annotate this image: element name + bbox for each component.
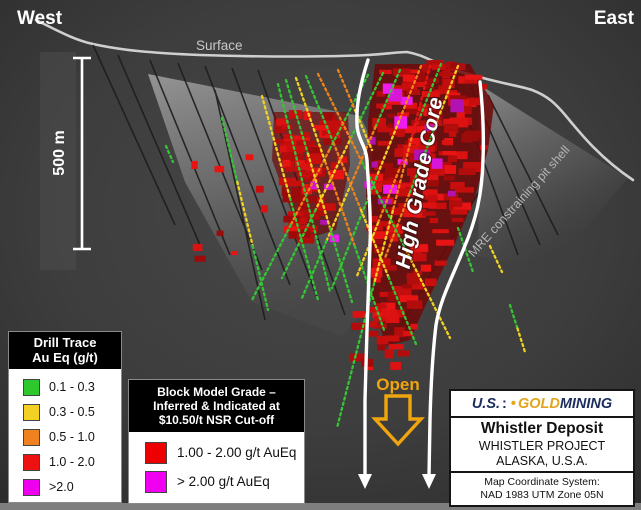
coord-line1: Map Coordinate System: (484, 476, 600, 489)
block-legend-title-line2: Inferred & Indicated at (131, 399, 302, 413)
legend-item-label: 0.3 - 0.5 (49, 405, 95, 419)
ore-block (407, 279, 419, 285)
ore-block (444, 175, 455, 180)
legend-item-label: > 2.00 g/t AuEq (177, 474, 270, 489)
ore-block (432, 229, 449, 233)
block-legend-title-line3: $10.50/t NSR Cut-off (131, 413, 302, 427)
east-label: East (594, 8, 635, 29)
logo-dots-navy: : (502, 396, 507, 412)
surface-label: Surface (196, 38, 243, 53)
open-label: Open (376, 375, 419, 394)
ore-block (389, 344, 404, 349)
ore-block (367, 331, 378, 337)
cross-section-figure: West East Surface 500 m MRE constraining… (0, 0, 641, 510)
location-name: ALASKA, U.S.A. (496, 454, 588, 469)
ore-block (283, 195, 302, 203)
color-swatch (23, 479, 40, 496)
west-label: West (17, 8, 63, 29)
ore-block (385, 350, 394, 359)
legend-item: 0.1 - 0.3 (23, 375, 121, 400)
ore-block (282, 125, 293, 129)
ore-block (452, 218, 464, 222)
ore-block (402, 284, 412, 288)
ore-block (382, 310, 397, 319)
ore-block (421, 265, 431, 272)
ore-block (256, 186, 264, 193)
ore-block (430, 218, 439, 223)
ore-block (397, 131, 404, 137)
color-swatch (23, 454, 40, 471)
ore-block (449, 131, 456, 137)
ore-block (459, 168, 476, 175)
ore-block (379, 70, 391, 74)
block-legend-body: 1.00 - 2.00 g/t AuEq > 2.00 g/t AuEq (129, 432, 304, 500)
project-name: WHISTLER PROJECT (479, 439, 605, 454)
block-legend-title-line1: Block Model Grade – (131, 385, 302, 399)
legend-item-label: >2.0 (49, 480, 74, 494)
ore-block (398, 350, 410, 356)
ore-block (406, 90, 420, 95)
ore-block (444, 165, 456, 174)
ore-block (466, 75, 483, 80)
ore-block (378, 199, 392, 204)
ore-block (372, 162, 378, 168)
ore-block (193, 244, 203, 251)
ore-block (377, 163, 394, 168)
legend-item: >2.0 (23, 475, 121, 500)
legend-item-label: 0.1 - 0.3 (49, 380, 95, 394)
block-legend-title: Block Model Grade – Inferred & Indicated… (129, 380, 304, 432)
ore-block (466, 131, 482, 139)
legend-item: 1.0 - 2.0 (23, 450, 121, 475)
legend-item-label: 1.0 - 2.0 (49, 455, 95, 469)
ore-block (436, 240, 454, 246)
ore-block (451, 209, 468, 214)
ore-block (302, 174, 310, 178)
block-model-legend: Block Model Grade – Inferred & Indicated… (128, 379, 305, 504)
ore-block (453, 99, 459, 111)
coord-line2: NAD 1983 UTM Zone 05N (480, 489, 603, 502)
drill-legend-body: 0.1 - 0.3 0.3 - 0.5 0.5 - 1.0 1.0 - 2.0 … (9, 369, 121, 504)
ore-block (377, 344, 386, 350)
legend-item-label: 0.5 - 1.0 (49, 430, 95, 444)
ore-block (195, 256, 206, 262)
logo-mining-text: MINING (560, 396, 612, 412)
title-block: U.S. :• GOLDMINING Whistler Deposit WHIS… (449, 389, 635, 507)
drill-legend-title-line2: Au Eq (g/t) (11, 350, 119, 365)
ore-block (403, 75, 415, 82)
ore-block (246, 154, 254, 160)
deposit-name: Whistler Deposit (481, 420, 603, 439)
drill-legend-title-line1: Drill Trace (11, 335, 119, 350)
legend-item-label: 1.00 - 2.00 g/t AuEq (177, 445, 296, 460)
ore-block (308, 147, 320, 153)
ore-block (435, 261, 447, 266)
drill-legend-title: Drill Trace Au Eq (g/t) (9, 332, 121, 369)
legend-item: 1.00 - 2.00 g/t AuEq (145, 438, 304, 467)
ore-block (442, 140, 452, 145)
ore-block (317, 203, 336, 211)
ore-block (217, 231, 224, 236)
ore-block (410, 324, 418, 330)
ore-block (469, 98, 480, 105)
legend-item: 0.3 - 0.5 (23, 400, 121, 425)
drill-trace-legend: Drill Trace Au Eq (g/t) 0.1 - 0.3 0.3 - … (8, 331, 122, 503)
ore-block (407, 300, 423, 309)
logo-gold-text: GOLD (518, 396, 560, 412)
scale-label: 500 m (51, 130, 68, 175)
coordinate-system: Map Coordinate System: NAD 1983 UTM Zone… (451, 473, 633, 505)
legend-item: 0.5 - 1.0 (23, 425, 121, 450)
ore-block (191, 161, 198, 169)
logo-dot-gold: • (511, 396, 516, 412)
ore-block (390, 362, 401, 370)
ore-block (323, 112, 333, 117)
ore-block (215, 166, 225, 172)
color-swatch (23, 379, 40, 396)
ore-block (443, 151, 457, 155)
ore-block (383, 84, 394, 94)
ore-block (376, 303, 386, 309)
color-swatch (23, 404, 40, 421)
color-swatch (145, 442, 167, 464)
color-swatch (145, 471, 167, 493)
deposit-info: Whistler Deposit WHISTLER PROJECT ALASKA… (451, 418, 633, 473)
ore-block (286, 181, 303, 187)
ore-block (385, 335, 399, 341)
ore-block (287, 146, 306, 152)
color-swatch (23, 429, 40, 446)
ore-block (448, 191, 456, 197)
ore-block (448, 156, 457, 162)
ore-block (393, 68, 410, 75)
ore-block (261, 205, 268, 212)
ore-block (455, 187, 474, 193)
ore-block (378, 141, 391, 146)
usgoldmining-logo: U.S. :• GOLDMINING (451, 391, 633, 418)
legend-item: > 2.00 g/t AuEq (145, 467, 304, 496)
ore-block (231, 251, 238, 255)
ore-block (354, 324, 363, 330)
ore-block (425, 279, 436, 287)
ore-block (282, 160, 290, 167)
logo-us: U.S. (472, 396, 500, 412)
